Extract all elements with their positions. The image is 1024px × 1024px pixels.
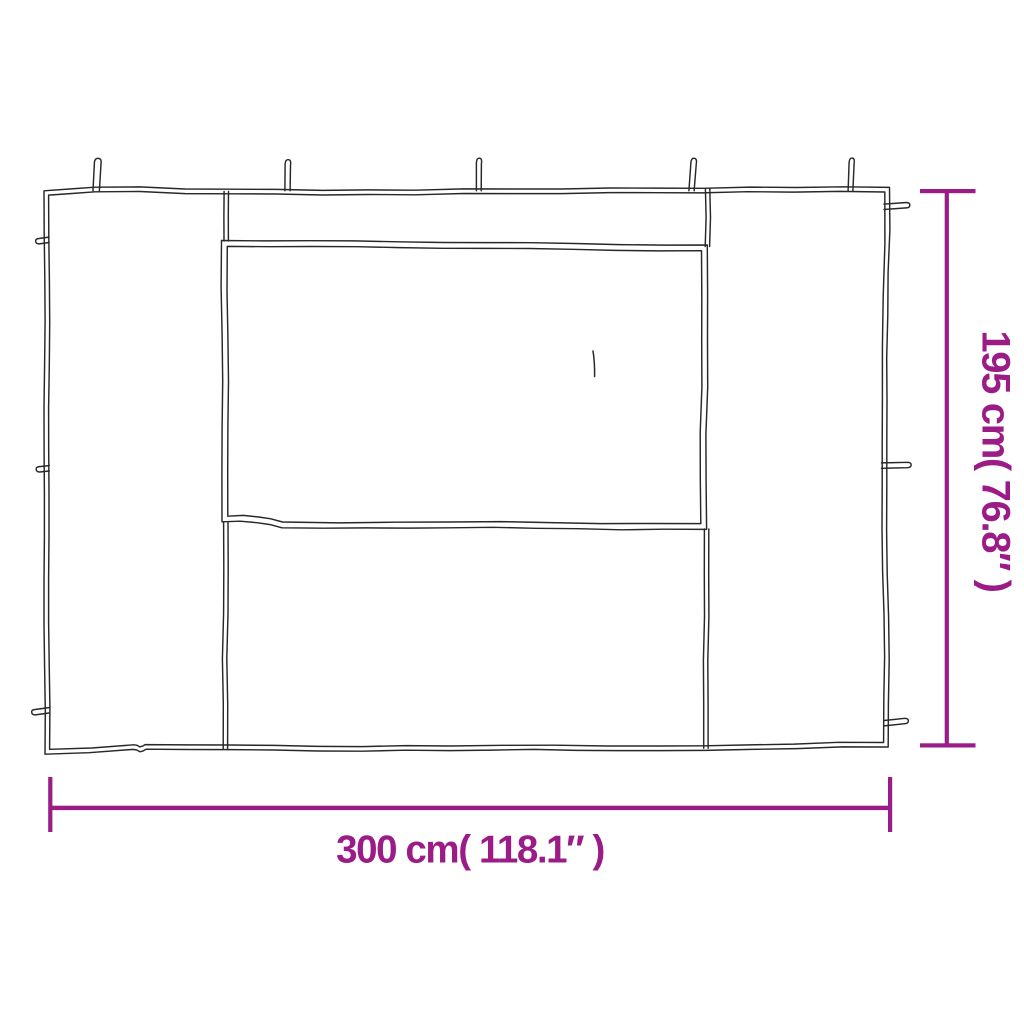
svg-text:300 cm( 118.1″ ): 300 cm( 118.1″ )	[336, 829, 604, 872]
svg-text:195 cm( 76.8″ ): 195 cm( 76.8″ )	[974, 330, 1018, 591]
